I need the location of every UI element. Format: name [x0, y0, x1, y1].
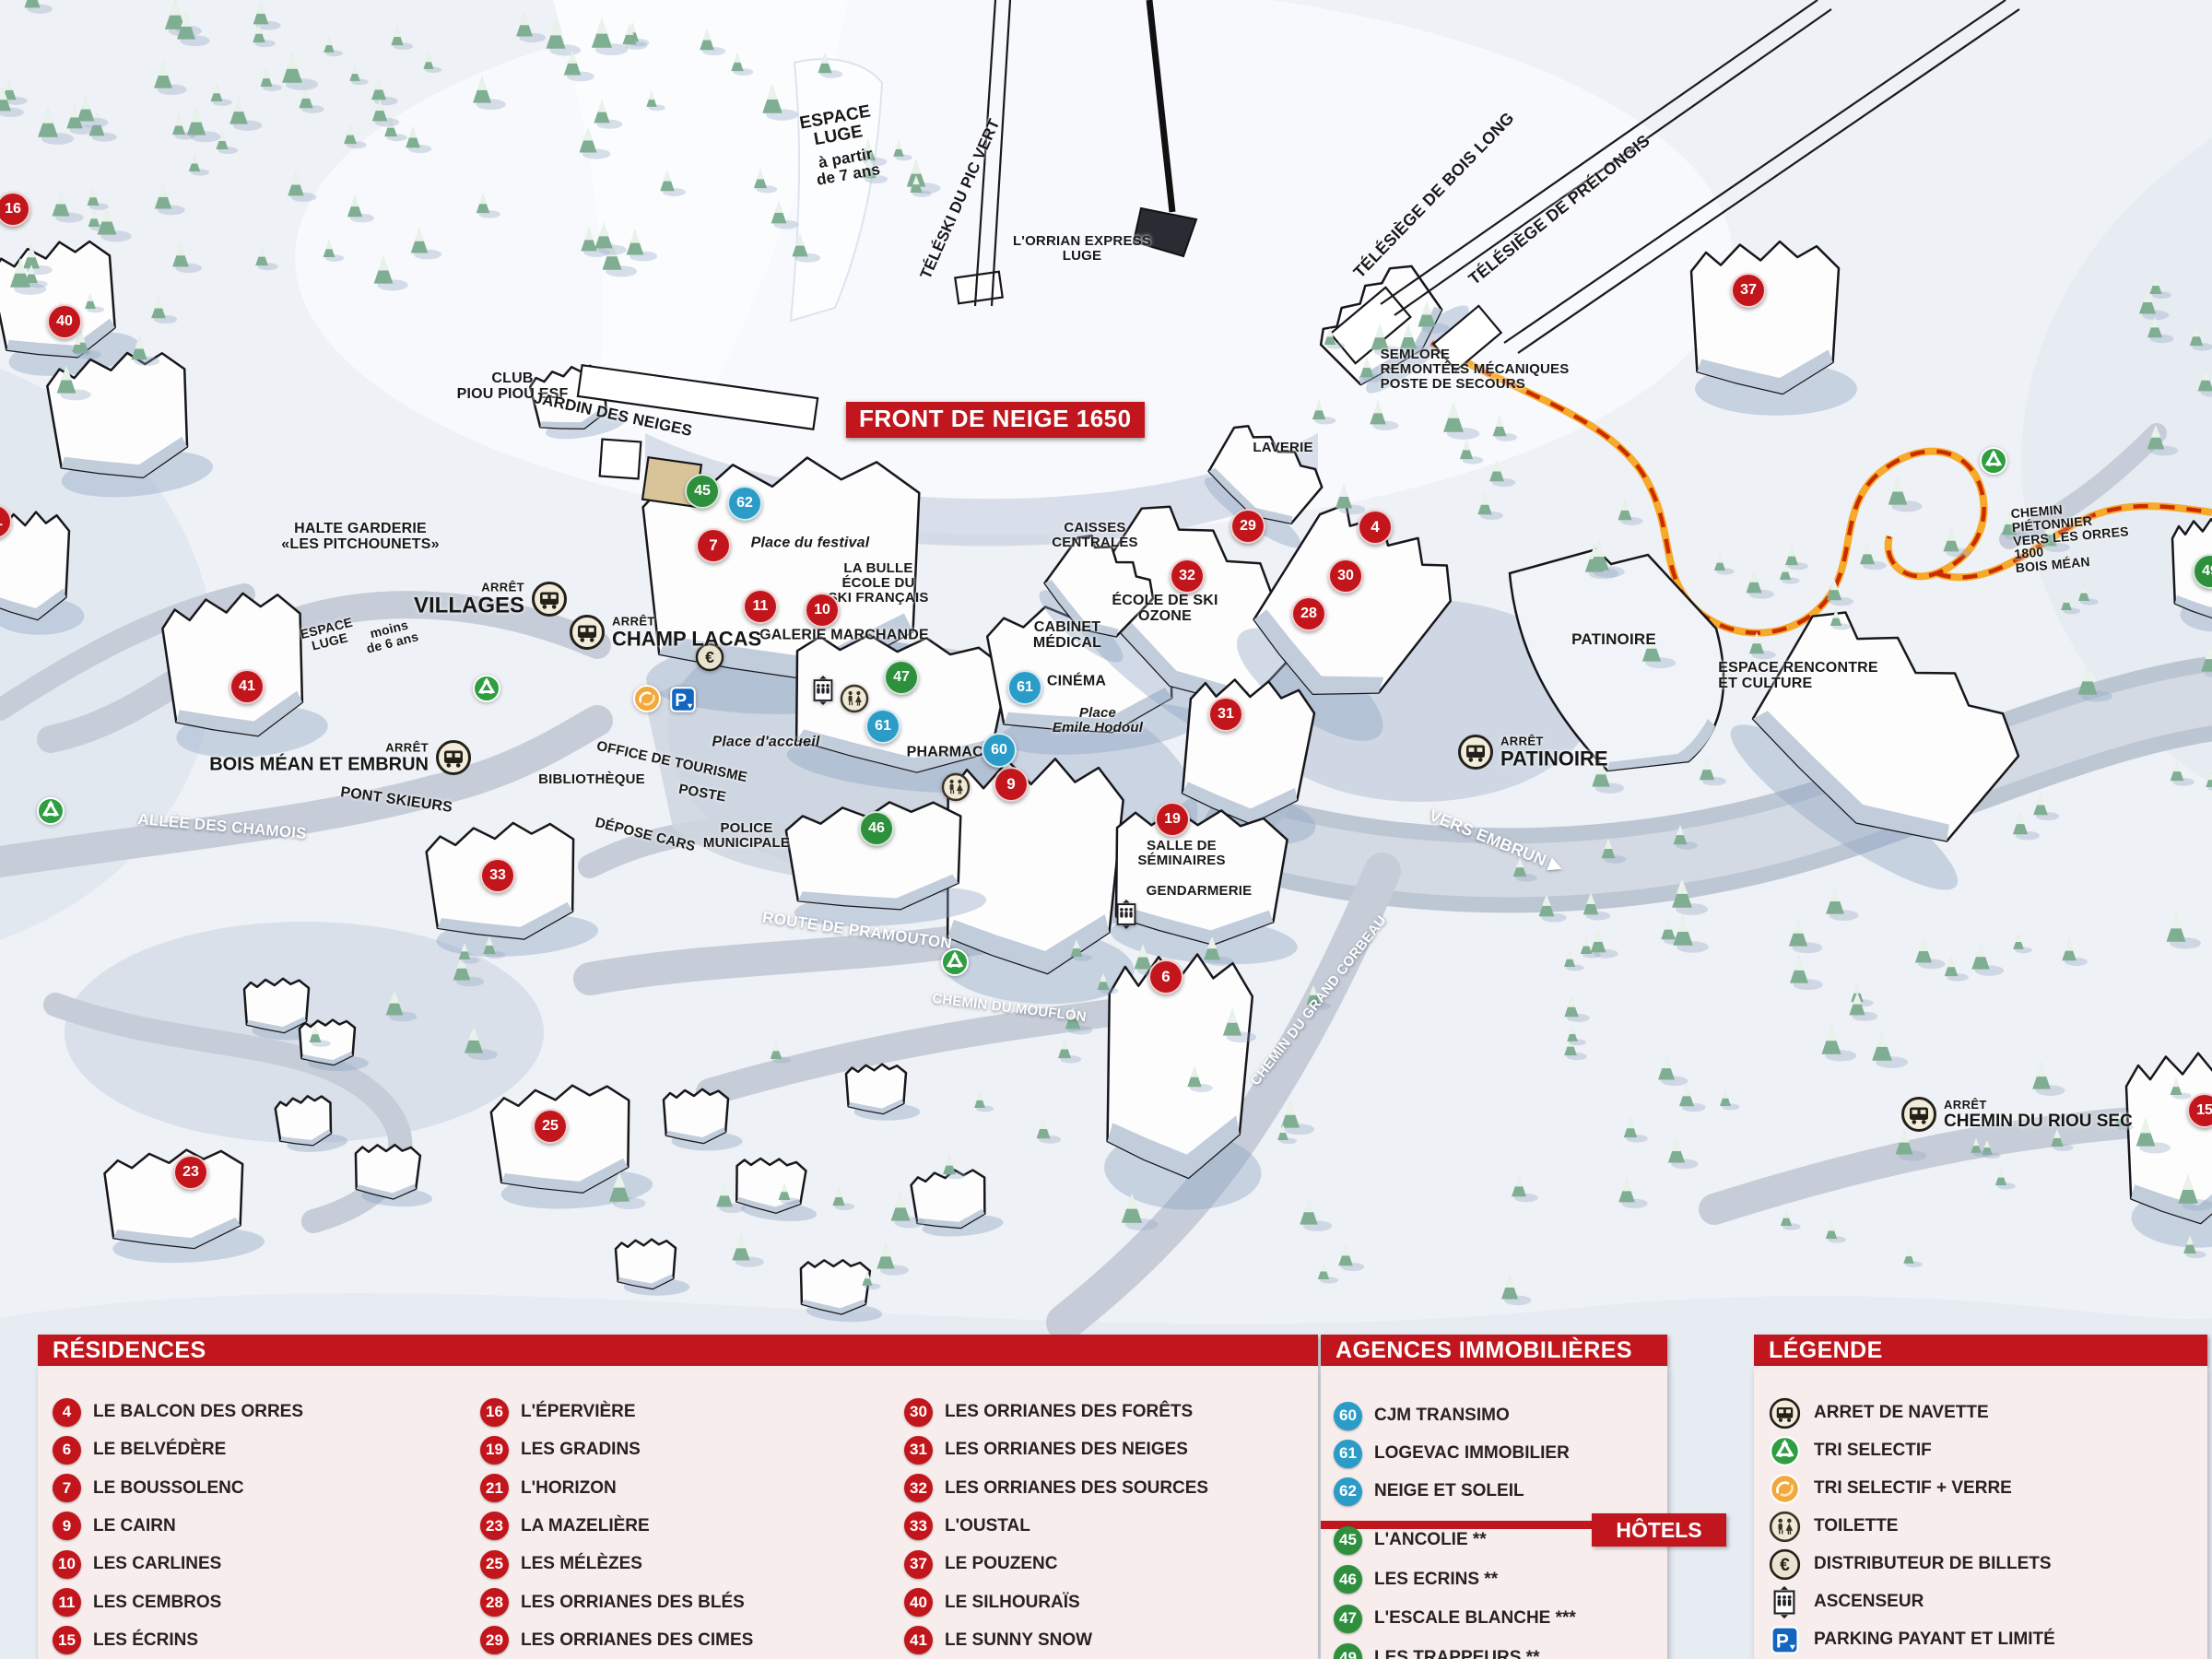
item-name: LES ORRIANES DES NEIGES — [945, 1440, 1188, 1460]
legend-item: TRI SELECTIF + VERRE — [1767, 1473, 2012, 1504]
list-item: 33L'OUSTAL — [904, 1511, 1030, 1542]
item-name: LES ORRIANES DES BLÉS — [521, 1593, 745, 1613]
list-item: 19LES GRADINS — [480, 1434, 641, 1465]
map-marker-19: 19 — [1155, 802, 1190, 837]
residences-header: RÉSIDENCES — [38, 1335, 1318, 1366]
item-name: LE POUZENC — [945, 1554, 1057, 1574]
recycle-icon — [1767, 1435, 1802, 1467]
item-number-badge: 9 — [53, 1512, 81, 1540]
list-item: 30LES ORRIANES DES FORÊTS — [904, 1396, 1193, 1428]
item-number-badge: 60 — [1334, 1402, 1362, 1430]
item-name: LE BOUSSOLENC — [93, 1478, 244, 1499]
map-label: CHEMIN PIÉTONNIER VERS LES ORRES 1800 BO… — [2010, 496, 2148, 575]
map-marker-4: 4 — [1358, 510, 1393, 545]
bus-stop-icon — [531, 581, 568, 618]
legend-header: LÉGENDE — [1754, 1335, 2207, 1366]
map-label: SEMLORE REMONTÉES MÉCANIQUES POSTE DE SE… — [1381, 347, 1570, 392]
ski-resort-map-page: ESPACE LUGEà partir de 7 ansTÉLÉSKI DU P… — [0, 0, 2212, 1659]
list-item: 16L'ÉPERVIÈRE — [480, 1396, 636, 1428]
bus-stop-name: BOIS MÉAN ET EMBRUN — [209, 755, 429, 775]
recycle-icon — [1979, 446, 2008, 476]
legend-item: TOILETTE — [1767, 1511, 1898, 1542]
item-name: LES TRAPPEURS ** — [1374, 1648, 1539, 1659]
legend-item: ASCENSEUR — [1767, 1586, 1924, 1618]
toilet-icon — [941, 772, 971, 802]
bus-stop-icon — [1900, 1096, 1937, 1133]
map-marker-7: 7 — [696, 528, 731, 563]
arret-word: ARRÊT — [1500, 735, 1608, 747]
parking-icon: P — [668, 685, 698, 714]
item-name: LES MÉLÈZES — [521, 1554, 642, 1574]
map-label: LAVERIE — [1253, 441, 1312, 455]
list-item: 15LES ÉCRINS — [53, 1625, 198, 1656]
panel-agences-hotels: AGENCES IMMOBILIÈRES HÔTELS 60CJM TRANSI… — [1321, 1335, 1667, 1659]
bus-stop-name: CHAMP LACAS — [612, 628, 761, 651]
map-marker-23: 23 — [173, 1155, 208, 1190]
item-number-badge: 4 — [53, 1398, 81, 1427]
item-number-badge: 32 — [904, 1474, 933, 1502]
residences-list: 4LE BALCON DES ORRES6LE BELVÉDÈRE7LE BOU… — [38, 1366, 1318, 1659]
map-label: CAISSES CENTRALES — [1052, 521, 1137, 550]
glass-icon — [1767, 1473, 1802, 1505]
item-name: LE SILHOURAÏS — [945, 1593, 1080, 1613]
bus-stop-label: ARRÊTPATINOIRE — [1500, 735, 1608, 770]
item-name: LES GRADINS — [521, 1440, 641, 1460]
list-item: 28LES ORRIANES DES BLÉS — [480, 1587, 745, 1618]
svg-text:€: € — [705, 648, 714, 666]
bus-stop-label: ARRÊTCHEMIN DU RIOU SEC — [1944, 1099, 2133, 1130]
item-number-badge: 61 — [1334, 1440, 1362, 1468]
map-label: Place d'accueil — [712, 735, 819, 751]
item-name: L'OUSTAL — [945, 1516, 1030, 1536]
list-item: 21L'HORIZON — [480, 1473, 617, 1504]
map-label: POLICE MUNICIPALE — [703, 821, 790, 851]
list-item: 41LE SUNNY SNOW — [904, 1625, 1092, 1656]
agences-header: AGENCES IMMOBILIÈRES — [1321, 1335, 1667, 1366]
item-number-badge: 6 — [53, 1436, 81, 1465]
list-item: 23LA MAZELIÈRE — [480, 1511, 650, 1542]
item-number-badge: 30 — [904, 1398, 933, 1427]
item-name: LES ÉCRINS — [93, 1630, 198, 1651]
glass-icon — [632, 684, 662, 713]
legend-label: DISTRIBUTEUR DE BILLETS — [1814, 1554, 2052, 1574]
svg-text:P: P — [675, 691, 687, 711]
legend-label: ASCENSEUR — [1814, 1592, 1924, 1612]
hotels-header: HÔTELS — [1592, 1513, 1726, 1547]
bus-stop-label: ARRÊTVILLAGES — [414, 582, 524, 618]
item-number-badge: 37 — [904, 1550, 933, 1579]
list-item: 61LOGEVAC IMMOBILIER — [1334, 1438, 1570, 1469]
map-marker-45: 45 — [685, 474, 720, 509]
legend-label: ARRET DE NAVETTE — [1814, 1403, 1989, 1423]
bus-stop-name: PATINOIRE — [1500, 747, 1608, 771]
map-marker-46: 46 — [859, 811, 894, 846]
item-name: LES CARLINES — [93, 1554, 221, 1574]
map-marker-6: 6 — [1148, 959, 1183, 994]
list-item: 45L'ANCOLIE ** — [1334, 1524, 1487, 1556]
legend-item: TRI SELECTIF — [1767, 1435, 1932, 1466]
item-number-badge: 41 — [904, 1626, 933, 1654]
item-name: L'ESCALE BLANCHE *** — [1374, 1608, 1576, 1629]
arret-word: ARRÊT — [414, 582, 524, 594]
bus-stop-name: VILLAGES — [414, 594, 524, 618]
bus-stop-icon — [1457, 734, 1494, 771]
bus-stop-label: ARRÊTCHAMP LACAS — [612, 616, 761, 650]
item-number-badge: 21 — [480, 1474, 509, 1502]
list-item: 7LE BOUSSOLENC — [53, 1473, 244, 1504]
item-number-badge: 47 — [1334, 1605, 1362, 1633]
lift-icon — [1767, 1584, 1802, 1620]
map-marker-37: 37 — [1731, 273, 1766, 308]
list-item: 10LES CARLINES — [53, 1548, 221, 1580]
map-marker-32: 32 — [1170, 559, 1205, 594]
front-de-neige-banner: FRONT DE NEIGE 1650 — [846, 402, 1145, 438]
item-name: CJM TRANSIMO — [1374, 1406, 1510, 1426]
item-name: LES ORRIANES DES SOURCES — [945, 1478, 1208, 1499]
item-name: LE BELVÉDÈRE — [93, 1440, 226, 1460]
item-number-badge: 11 — [53, 1588, 81, 1617]
item-number-badge: 29 — [480, 1626, 509, 1654]
euro-icon: € — [1767, 1548, 1802, 1581]
legend-label: TRI SELECTIF — [1814, 1441, 1932, 1461]
item-name: LES CEMBROS — [93, 1593, 221, 1613]
arret-word: ARRÊT — [209, 742, 429, 754]
item-number-badge: 28 — [480, 1588, 509, 1617]
item-number-badge: 7 — [53, 1474, 81, 1502]
item-name: LES ECRINS ** — [1374, 1570, 1498, 1590]
svg-text:€: € — [1780, 1556, 1790, 1575]
map-marker-47: 47 — [884, 660, 919, 695]
list-item: 47L'ESCALE BLANCHE *** — [1334, 1603, 1576, 1634]
lift-icon — [1113, 898, 1140, 931]
item-number-badge: 16 — [480, 1398, 509, 1427]
bus-icon — [1767, 1397, 1802, 1430]
map-label: SALLE DE SÉMINAIRES — [1137, 839, 1225, 868]
legend-label: TRI SELECTIF + VERRE — [1814, 1478, 2012, 1499]
list-item: 9LE CAIRN — [53, 1511, 176, 1542]
item-number-badge: 31 — [904, 1436, 933, 1465]
item-name: LE CAIRN — [93, 1516, 176, 1536]
legend-label: PARKING PAYANT ET LIMITÉ — [1814, 1630, 2055, 1650]
map-label: ÉCOLE DE SKI OZONE — [1112, 594, 1218, 625]
item-number-badge: 40 — [904, 1588, 933, 1617]
item-name: LES ORRIANES DES FORÊTS — [945, 1402, 1193, 1422]
map-label: BIBLIOTHÈQUE — [538, 772, 645, 787]
map-marker-40: 40 — [47, 304, 82, 339]
item-number-badge: 49 — [1334, 1643, 1362, 1659]
map-marker-28: 28 — [1291, 596, 1326, 631]
list-item: 37LE POUZENC — [904, 1548, 1057, 1580]
toilet-icon — [1767, 1511, 1802, 1543]
list-item: 62NEIGE ET SOLEIL — [1334, 1476, 1524, 1507]
toilet-icon — [840, 684, 869, 713]
item-name: LOGEVAC IMMOBILIER — [1374, 1443, 1570, 1464]
item-name: L'ÉPERVIÈRE — [521, 1402, 636, 1422]
item-name: L'ANCOLIE ** — [1374, 1530, 1487, 1550]
recycle-icon — [940, 947, 970, 977]
map-marker-30: 30 — [1328, 559, 1363, 594]
list-item: 60CJM TRANSIMO — [1334, 1400, 1510, 1431]
arret-word: ARRÊT — [1944, 1099, 2133, 1111]
item-number-badge: 62 — [1334, 1477, 1362, 1506]
item-number-badge: 15 — [53, 1626, 81, 1654]
item-number-badge: 25 — [480, 1550, 509, 1579]
item-name: LA MAZELIÈRE — [521, 1516, 650, 1536]
map-label: GALERIE MARCHANDE — [759, 629, 929, 644]
item-number-badge: 46 — [1334, 1565, 1362, 1594]
map-label: CABINET MÉDICAL — [1033, 620, 1101, 652]
map-marker-61: 61 — [865, 709, 900, 744]
legend-item: PPARKING PAYANT ET LIMITÉ — [1767, 1624, 2055, 1655]
item-name: LE SUNNY SNOW — [945, 1630, 1092, 1651]
map-label: Place du festival — [751, 536, 870, 552]
item-name: LE BALCON DES ORRES — [93, 1402, 303, 1422]
map-marker-10: 10 — [805, 593, 840, 628]
list-item: 32LES ORRIANES DES SOURCES — [904, 1473, 1208, 1504]
map-marker-61: 61 — [1007, 670, 1042, 705]
recycle-icon — [36, 796, 65, 826]
item-number-badge: 19 — [480, 1436, 509, 1465]
agences-hotels-list: HÔTELS 60CJM TRANSIMO61LOGEVAC IMMOBILIE… — [1321, 1366, 1667, 1659]
list-item: 6LE BELVÉDÈRE — [53, 1434, 226, 1465]
legend-item: ARRET DE NAVETTE — [1767, 1397, 1989, 1429]
legend-list: ARRET DE NAVETTETRI SELECTIFTRI SELECTIF… — [1754, 1366, 2207, 1659]
map-marker-25: 25 — [533, 1109, 568, 1144]
map-label: GENDARMERIE — [1147, 884, 1253, 899]
item-name: LES ORRIANES DES CIMES — [521, 1630, 753, 1651]
svg-text:P: P — [1775, 1630, 1788, 1652]
map-marker-60: 60 — [982, 733, 1017, 768]
list-item: 46LES ECRINS ** — [1334, 1564, 1498, 1595]
item-number-badge: 10 — [53, 1550, 81, 1579]
item-number-badge: 45 — [1334, 1526, 1362, 1555]
map-marker-62: 62 — [727, 486, 762, 521]
lift-icon — [810, 674, 837, 707]
map-label: CINÉMA — [1047, 675, 1106, 690]
list-item: 49LES TRAPPEURS ** — [1334, 1642, 1539, 1659]
map-label: L'ORRIAN EXPRESS LUGE — [1013, 234, 1151, 264]
map-marker-41: 41 — [229, 669, 265, 704]
item-number-badge: 23 — [480, 1512, 509, 1540]
item-name: NEIGE ET SOLEIL — [1374, 1481, 1524, 1501]
list-item: 11LES CEMBROS — [53, 1587, 221, 1618]
map-label: LA BULLE ÉCOLE DU SKI FRANÇAIS — [828, 561, 928, 606]
bus-stop-name: CHEMIN DU RIOU SEC — [1944, 1112, 2133, 1131]
list-item: 25LES MÉLÈZES — [480, 1548, 642, 1580]
map-label: ESPACE RENCONTRE ET CULTURE — [1718, 661, 1878, 692]
map-marker-33: 33 — [480, 858, 515, 893]
bus-stop-icon — [435, 739, 472, 776]
map-marker-9: 9 — [994, 767, 1029, 802]
item-number-badge: 33 — [904, 1512, 933, 1540]
map-marker-31: 31 — [1208, 697, 1243, 732]
parking-icon: P — [1767, 1624, 1802, 1656]
map-label: HALTE GARDERIE «LES PITCHOUNETS» — [281, 522, 439, 553]
list-item: 29LES ORRIANES DES CIMES — [480, 1625, 753, 1656]
item-name: L'HORIZON — [521, 1478, 617, 1499]
bus-stop-label: ARRÊTBOIS MÉAN ET EMBRUN — [209, 742, 429, 774]
recycle-icon — [472, 674, 501, 703]
arret-word: ARRÊT — [612, 616, 761, 628]
bus-stop-icon — [569, 614, 606, 651]
legend-label: TOILETTE — [1814, 1516, 1898, 1536]
list-item: 31LES ORRIANES DES NEIGES — [904, 1434, 1188, 1465]
legend-item: €DISTRIBUTEUR DE BILLETS — [1767, 1548, 2052, 1580]
panel-legend: LÉGENDE ARRET DE NAVETTETRI SELECTIFTRI … — [1754, 1335, 2207, 1659]
map-marker-29: 29 — [1230, 509, 1265, 544]
list-item: 40LE SILHOURAÏS — [904, 1587, 1080, 1618]
list-item: 4LE BALCON DES ORRES — [53, 1396, 303, 1428]
map-label: PATINOIRE — [1571, 631, 1656, 648]
panel-residences: RÉSIDENCES 4LE BALCON DES ORRES6LE BELVÉ… — [38, 1335, 1318, 1659]
map-label: Place Emile Hodoul — [1053, 706, 1143, 735]
